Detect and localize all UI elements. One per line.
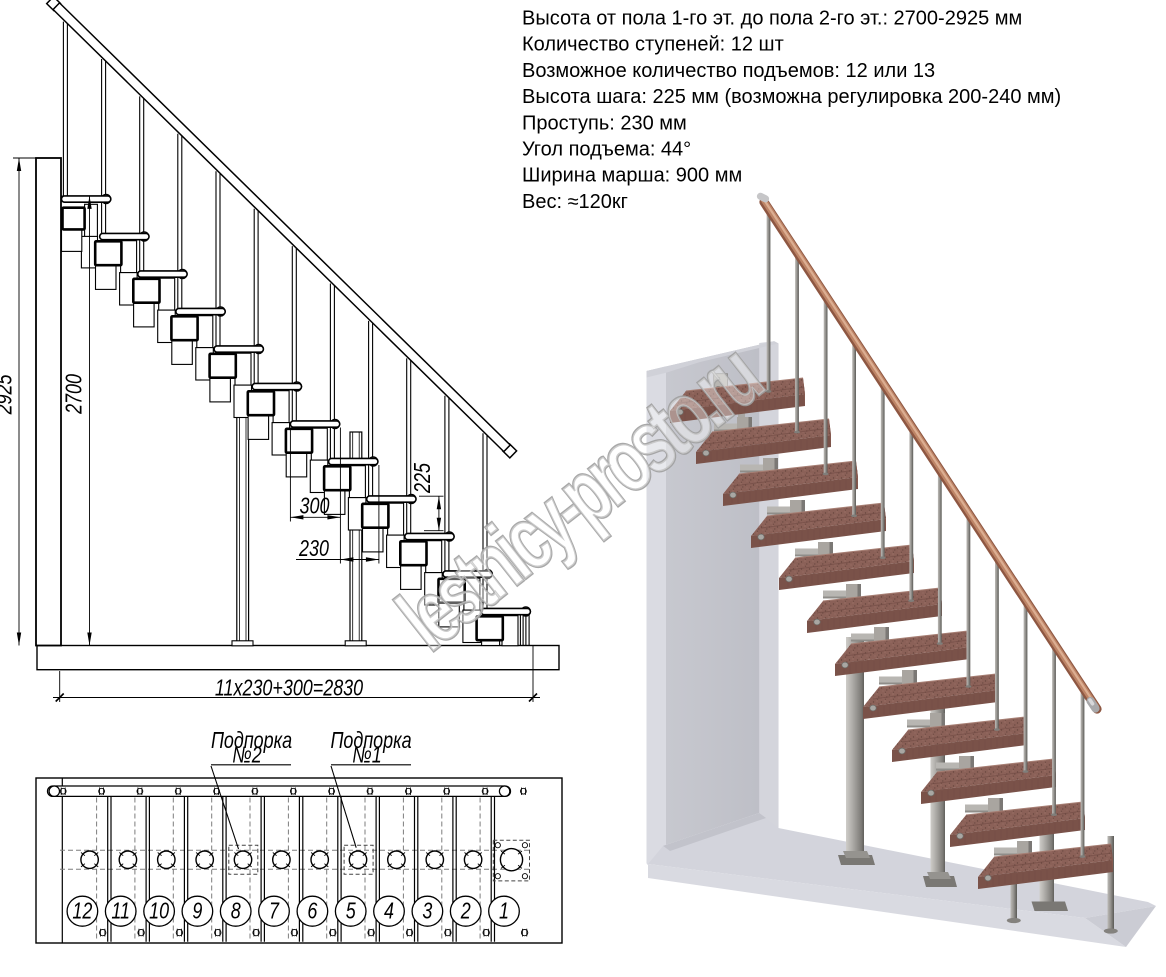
svg-text:6: 6 — [307, 898, 317, 924]
svg-text:7: 7 — [269, 898, 280, 924]
svg-text:Высота от пола 1-го эт. до пол: Высота от пола 1-го эт. до пола 2-го эт.… — [522, 8, 1022, 30]
svg-text:Количество ступеней: 12 шт: Количество ступеней: 12 шт — [522, 34, 784, 56]
svg-text:300: 300 — [300, 493, 330, 519]
svg-text:Проступь: 230 мм: Проступь: 230 мм — [522, 112, 687, 134]
svg-text:9: 9 — [192, 898, 202, 924]
svg-text:Угол подъема: 44°: Угол подъема: 44° — [522, 139, 691, 161]
svg-text:2700: 2700 — [61, 374, 87, 415]
svg-text:8: 8 — [231, 898, 241, 924]
svg-text:11: 11 — [111, 898, 130, 924]
svg-text:Вес: ≈120кг: Вес: ≈120кг — [522, 191, 628, 213]
svg-text:1: 1 — [499, 898, 509, 924]
svg-text:225: 225 — [410, 463, 436, 494]
svg-text:Ширина марша: 900 мм: Ширина марша: 900 мм — [522, 165, 742, 187]
svg-text:12: 12 — [72, 898, 92, 924]
svg-text:230: 230 — [298, 536, 329, 562]
svg-text:2925: 2925 — [0, 374, 17, 415]
svg-text:Высота шага: 225 мм (возможна: Высота шага: 225 мм (возможна регулировк… — [522, 86, 1061, 108]
svg-text:5: 5 — [346, 898, 356, 924]
svg-text:Возможное количество подъемов:: Возможное количество подъемов: 12 или 13 — [522, 60, 935, 82]
svg-text:11x230+300=2830: 11x230+300=2830 — [215, 675, 364, 701]
svg-text:№1: №1 — [352, 742, 381, 768]
svg-text:4: 4 — [384, 898, 394, 924]
svg-text:2: 2 — [460, 898, 471, 924]
svg-text:№2: №2 — [232, 742, 262, 768]
svg-text:10: 10 — [149, 898, 169, 924]
svg-text:3: 3 — [422, 898, 432, 924]
